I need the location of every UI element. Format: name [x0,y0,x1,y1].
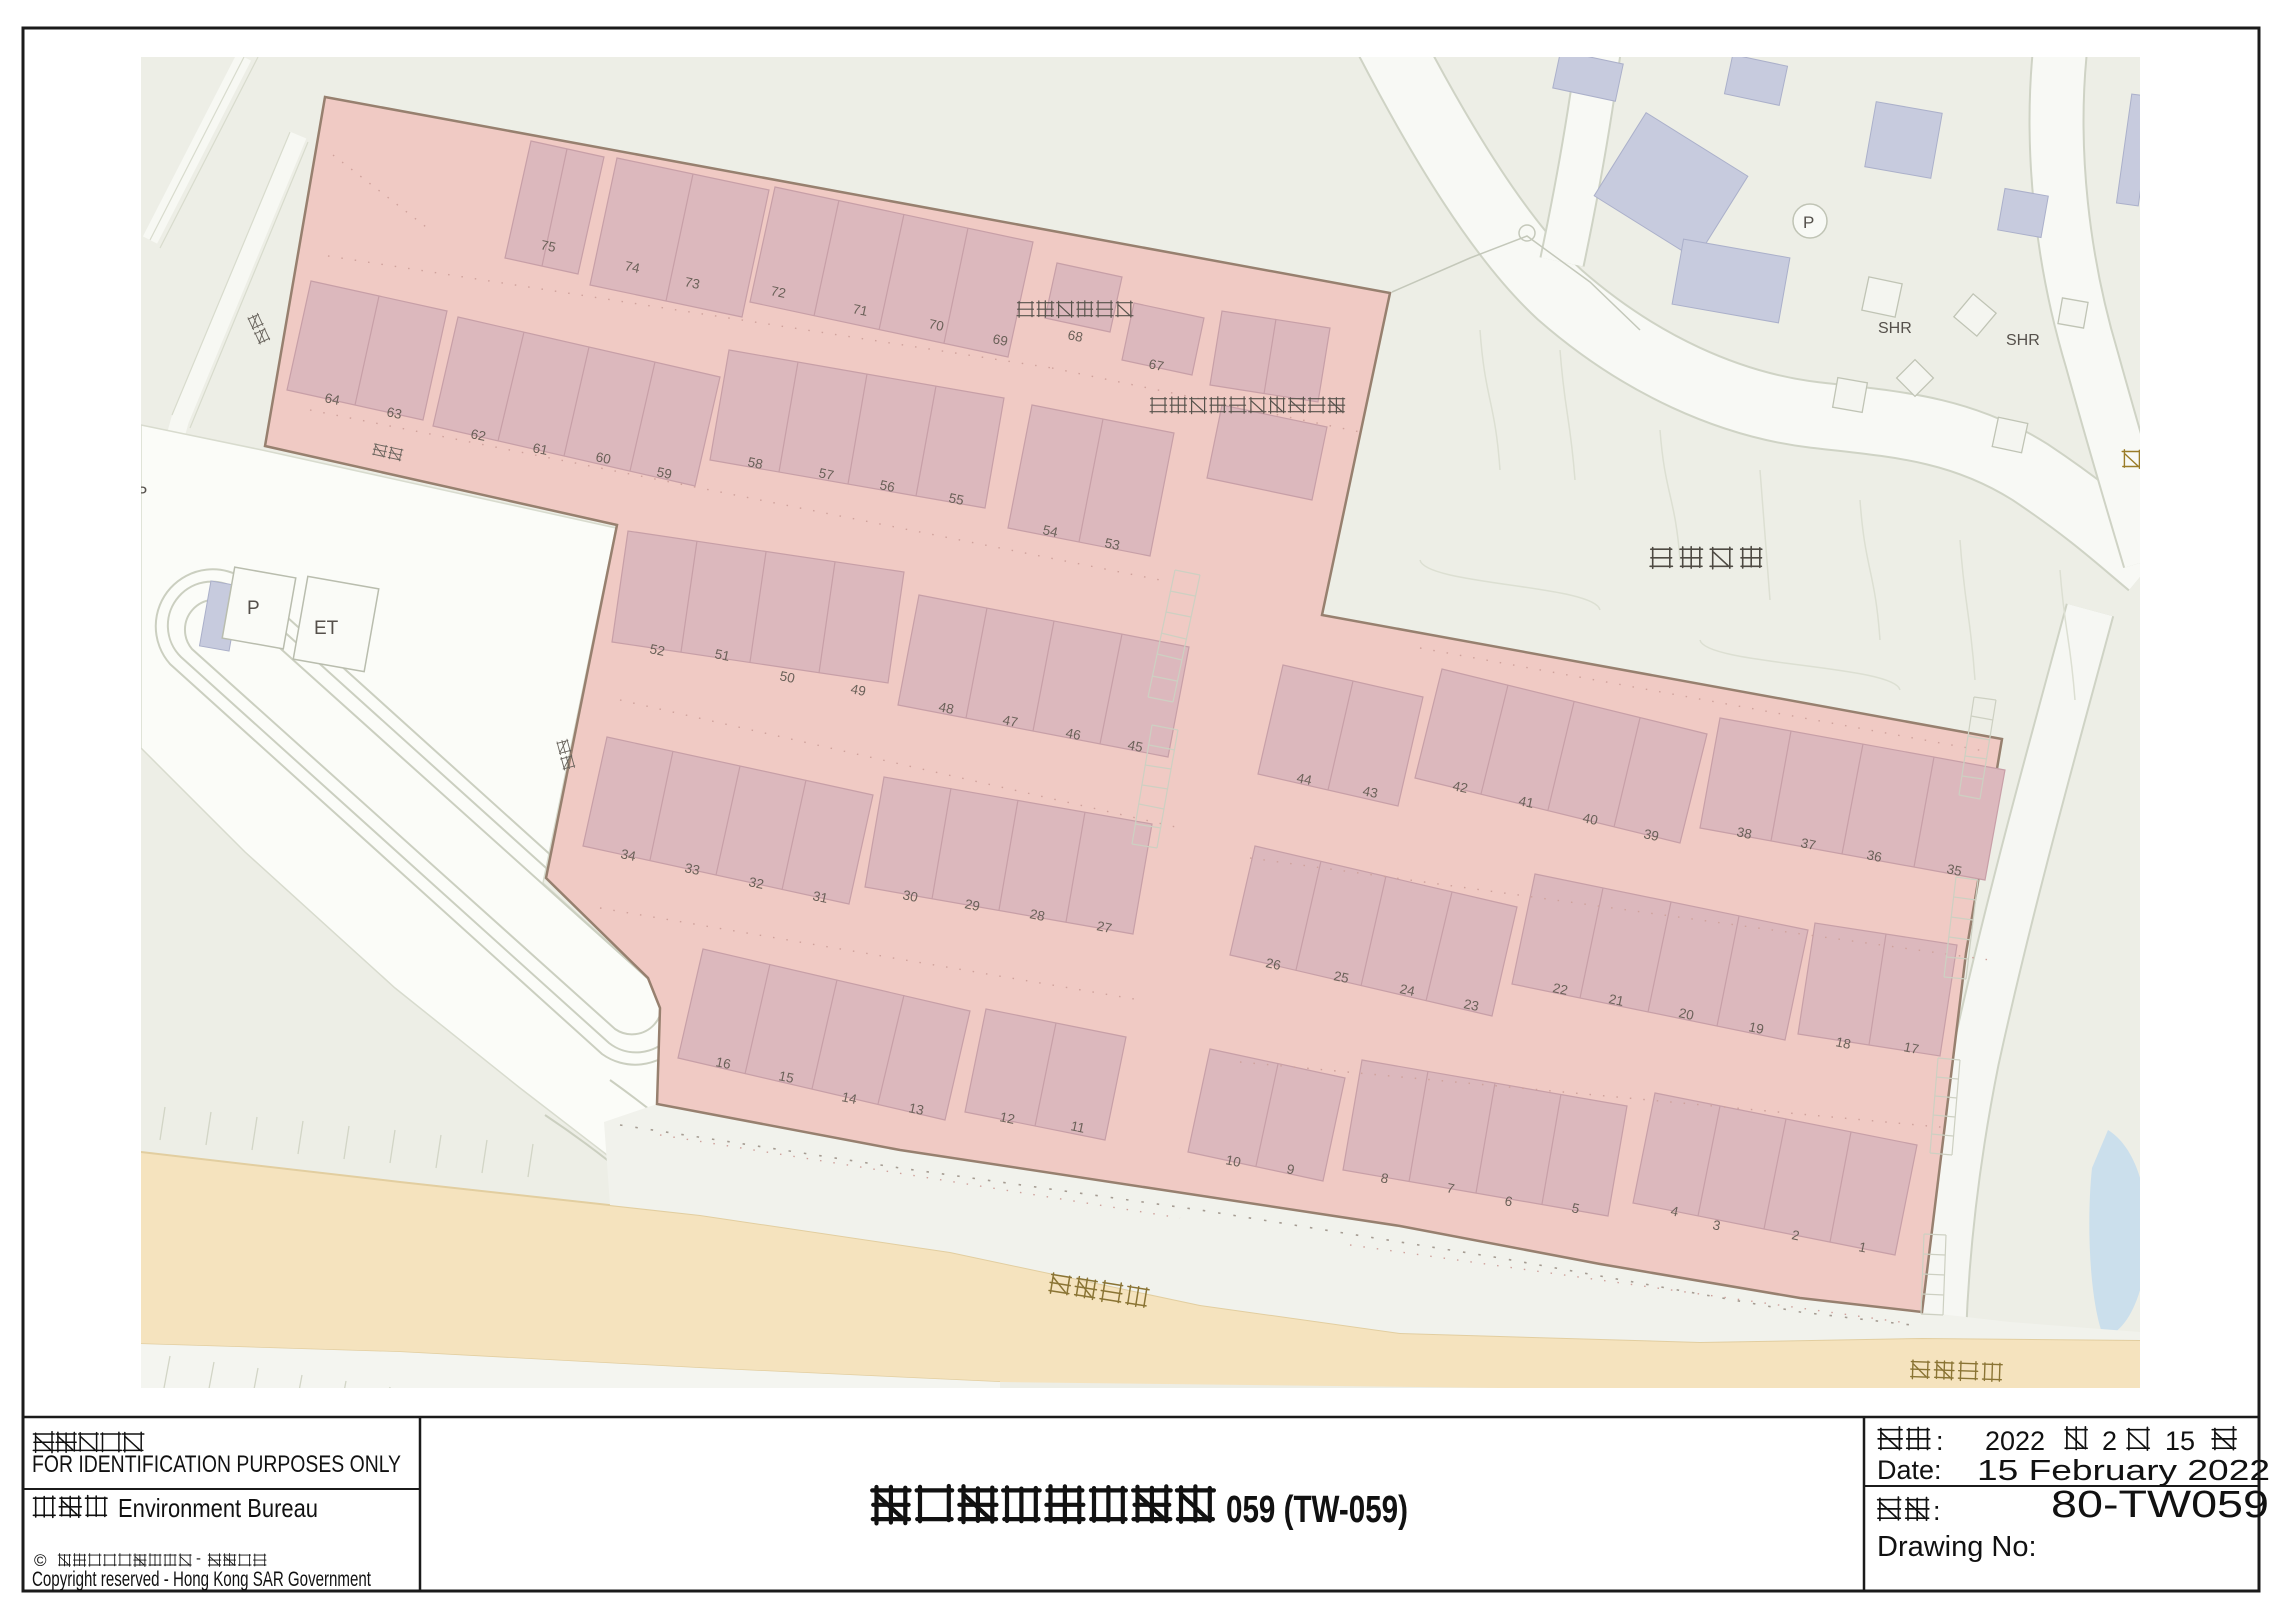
svg-text:51: 51 [713,646,731,664]
svg-text:73: 73 [683,274,701,292]
svg-text:Date:: Date: [1877,1455,1942,1485]
svg-text:53: 53 [1103,535,1121,553]
svg-text:63: 63 [385,404,403,422]
svg-text:21: 21 [1607,991,1625,1009]
svg-text:18: 18 [1834,1034,1852,1052]
svg-text:75: 75 [539,237,557,255]
svg-text:57: 57 [817,465,835,483]
svg-text:72: 72 [769,283,787,301]
svg-text:38: 38 [1735,824,1753,842]
svg-text:SHR: SHR [2006,332,2040,349]
svg-text:Drawing No:: Drawing No: [1877,1531,2037,1563]
svg-text:Environment Bureau: Environment Bureau [118,1493,318,1523]
svg-text:50: 50 [778,668,796,686]
svg-text:70: 70 [927,316,945,334]
svg-text:15: 15 [777,1068,795,1086]
svg-text:SHR: SHR [1878,320,1912,337]
svg-text:32: 32 [747,874,765,892]
svg-text:33: 33 [683,860,701,878]
svg-text:47: 47 [1001,712,1019,730]
svg-text:30: 30 [901,887,919,905]
svg-text:37: 37 [1799,835,1817,853]
svg-text:27: 27 [1095,918,1113,936]
svg-text:12: 12 [998,1109,1016,1127]
svg-text:20: 20 [1677,1005,1695,1023]
svg-text:48: 48 [937,699,955,717]
svg-text:29: 29 [963,896,981,914]
svg-text:39: 39 [1642,826,1660,844]
svg-text:P: P [1803,213,1814,232]
svg-text:25: 25 [1332,968,1350,986]
svg-text:60: 60 [594,449,612,467]
svg-text:2022: 2022 [1985,1426,2045,1456]
svg-text::: : [1936,1426,1944,1456]
svg-text:59: 59 [655,464,673,482]
svg-text:16: 16 [714,1054,732,1072]
svg-text:68: 68 [1066,327,1084,345]
svg-text:67: 67 [1147,356,1165,374]
svg-text:10: 10 [1224,1152,1242,1170]
svg-text:26: 26 [1264,955,1282,973]
svg-text:56: 56 [878,477,896,495]
svg-text:45: 45 [1126,737,1144,755]
svg-text:62: 62 [469,426,487,444]
svg-text:58: 58 [746,454,764,472]
svg-text:Copyright reserved - Hong Kong: Copyright reserved - Hong Kong SAR Gover… [32,1568,371,1591]
svg-text:36: 36 [1865,847,1883,865]
svg-text:61: 61 [531,440,549,458]
svg-text:69: 69 [991,331,1009,349]
svg-text:71: 71 [851,301,869,319]
svg-text:2: 2 [2102,1426,2117,1456]
svg-text:49: 49 [849,681,867,699]
svg-text:17: 17 [1902,1039,1920,1057]
svg-text:40: 40 [1581,810,1599,828]
svg-text:52: 52 [648,641,666,659]
svg-text:13: 13 [907,1100,925,1118]
svg-text:43: 43 [1361,783,1379,801]
svg-text:35: 35 [1945,861,1963,879]
svg-text:41: 41 [1517,793,1535,811]
svg-text:55: 55 [947,490,965,508]
svg-text:-: - [196,1550,201,1567]
svg-text:80-TW059: 80-TW059 [2051,1484,2269,1526]
svg-text:28: 28 [1028,906,1046,924]
svg-text:31: 31 [811,888,829,906]
svg-text:42: 42 [1451,778,1469,796]
svg-text:22: 22 [1551,980,1569,998]
svg-text:15 February 2022: 15 February 2022 [1977,1455,2270,1487]
svg-text:15: 15 [2165,1426,2195,1456]
svg-text:46: 46 [1064,725,1082,743]
svg-text:FOR IDENTIFICATION PURPOSES ON: FOR IDENTIFICATION PURPOSES ONLY [32,1451,401,1478]
svg-text::: : [1933,1496,1941,1526]
svg-text:059 (TW-059): 059 (TW-059) [1226,1489,1408,1531]
svg-text:P: P [247,598,260,619]
svg-text:19: 19 [1747,1019,1765,1037]
svg-text:23: 23 [1462,996,1480,1014]
svg-text:ET: ET [314,618,339,639]
